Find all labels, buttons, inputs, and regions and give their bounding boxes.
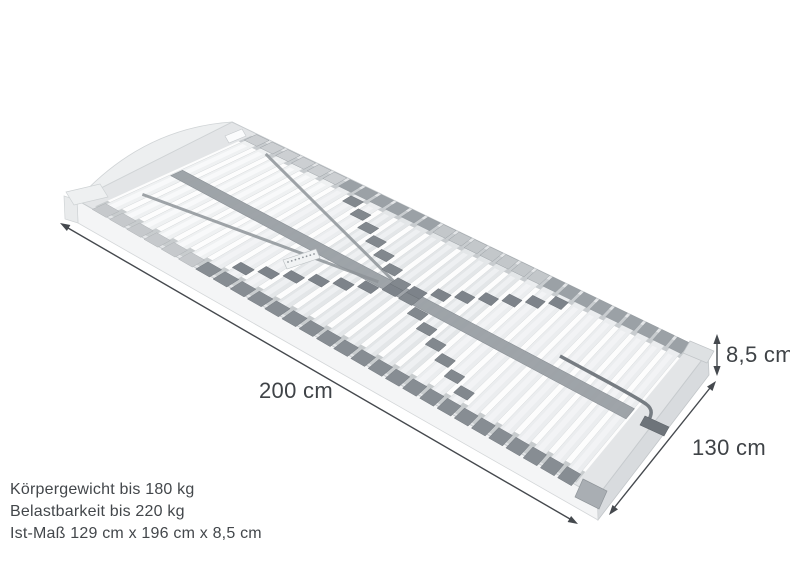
dimension-height: 8,5 cm xyxy=(713,334,790,376)
product-dimension-diagram: 200 cm 130 cm 8,5 cm Körpergewicht bis 1… xyxy=(0,0,790,580)
width-label: 130 cm xyxy=(692,435,766,460)
spec-bodyweight: Körpergewicht bis 180 kg xyxy=(10,479,262,501)
length-arrowhead-end xyxy=(568,516,578,524)
length-arrowhead-start xyxy=(60,223,70,231)
slatted-bed-frame xyxy=(64,122,714,520)
length-label: 200 cm xyxy=(259,378,333,403)
height-arrowhead-top xyxy=(713,334,720,344)
specs-block: Körpergewicht bis 180 kg Belastbarkeit b… xyxy=(10,479,262,545)
height-label: 8,5 cm xyxy=(726,342,790,367)
spec-loadcapacity: Belastbarkeit bis 220 kg xyxy=(10,501,262,523)
width-arrowhead-bottom xyxy=(609,505,618,515)
height-arrowhead-bottom xyxy=(713,366,720,376)
spec-actual-size: Ist-Maß 129 cm x 196 cm x 8,5 cm xyxy=(10,523,262,545)
